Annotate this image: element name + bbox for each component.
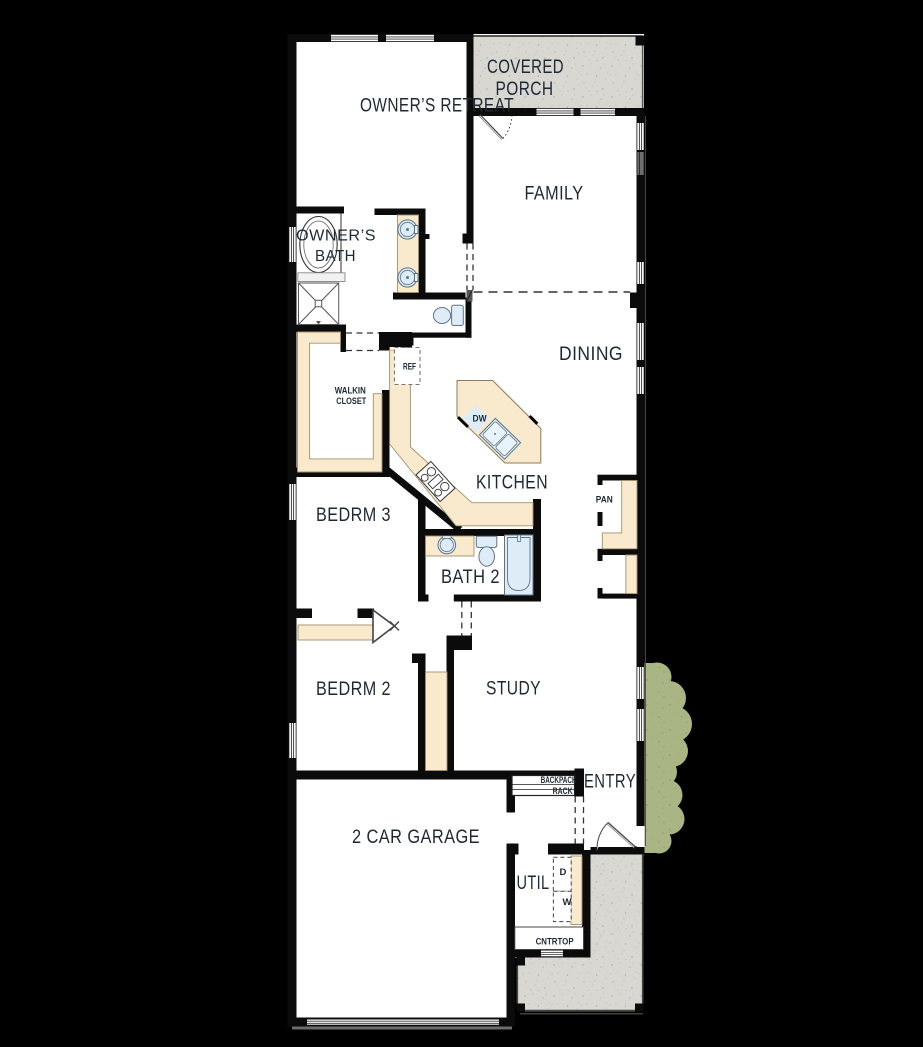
svg-text:BATH 2: BATH 2 <box>441 567 500 588</box>
svg-text:COVERED: COVERED <box>487 57 564 78</box>
svg-text:PORCH: PORCH <box>496 79 554 100</box>
svg-text:BEDRM 3: BEDRM 3 <box>316 505 391 526</box>
svg-text:STUDY: STUDY <box>486 679 541 700</box>
svg-text:W: W <box>563 897 572 908</box>
svg-text:2 CAR GARAGE: 2 CAR GARAGE <box>352 827 480 848</box>
svg-text:BEDRM 2: BEDRM 2 <box>316 679 391 700</box>
svg-text:BACKPACK: BACKPACK <box>541 775 577 786</box>
svg-text:WALKIN: WALKIN <box>335 386 366 397</box>
svg-text:CNTRTOP: CNTRTOP <box>536 937 575 948</box>
svg-text:DW: DW <box>473 414 487 425</box>
svg-text:OWNER’S RETREAT: OWNER’S RETREAT <box>360 96 514 117</box>
svg-text:KITCHEN: KITCHEN <box>476 473 548 494</box>
svg-text:DINING: DINING <box>559 344 623 365</box>
svg-text:BATH: BATH <box>315 248 356 265</box>
svg-text:FAMILY: FAMILY <box>525 184 584 205</box>
svg-text:UTIL: UTIL <box>517 873 550 894</box>
svg-text:CLOSET: CLOSET <box>336 396 366 407</box>
svg-text:D: D <box>560 867 567 878</box>
svg-text:PAN: PAN <box>596 495 613 506</box>
svg-text:RACK: RACK <box>553 786 573 797</box>
svg-text:REF: REF <box>403 362 416 373</box>
svg-text:ENTRY: ENTRY <box>584 772 636 793</box>
svg-text:OWNER’S: OWNER’S <box>296 228 376 245</box>
